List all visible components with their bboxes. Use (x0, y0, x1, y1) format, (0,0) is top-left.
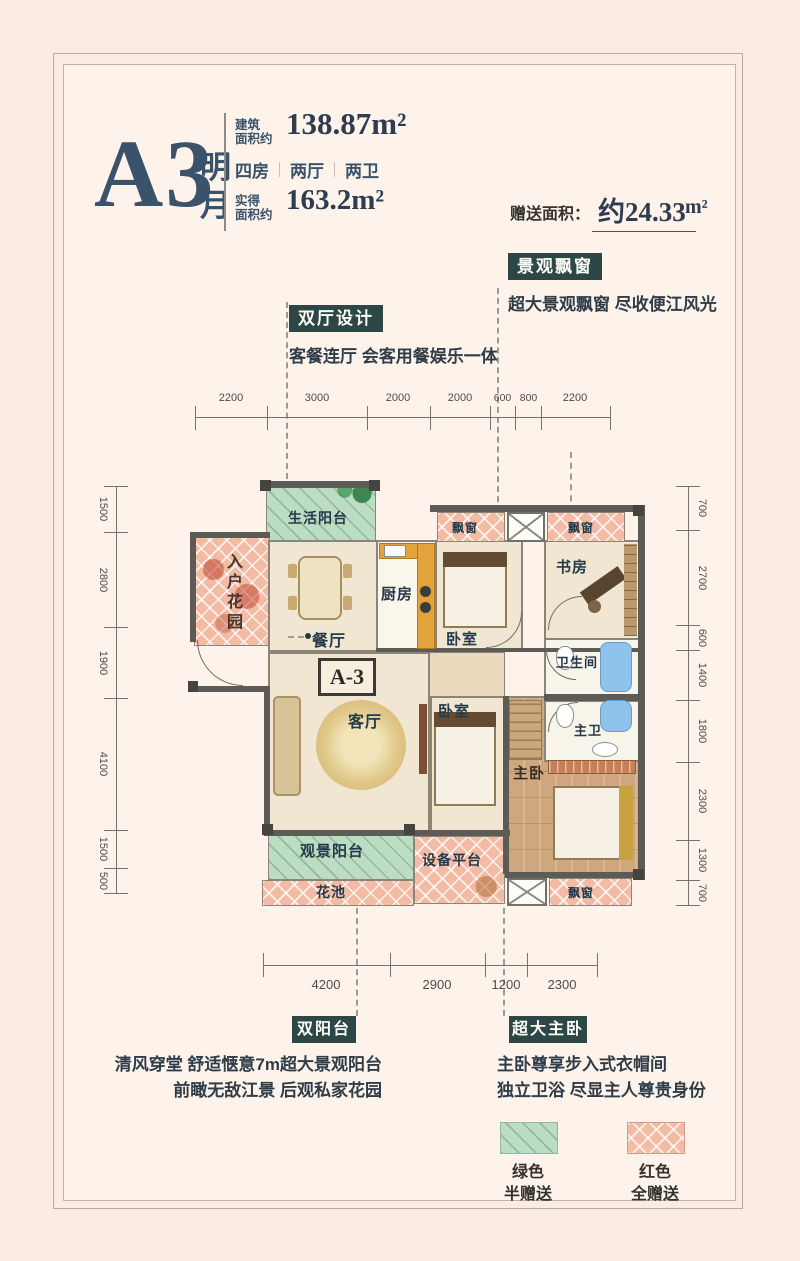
wall-pillar (262, 824, 273, 835)
study-chair (588, 600, 601, 613)
dim-top-4: 600 (489, 392, 516, 404)
wardrobe-corridor (509, 700, 542, 760)
actual-area-label-2: 面积约 (235, 204, 273, 223)
bonus-area-value: 约24.33 (592, 190, 696, 232)
dim-line-top (195, 417, 610, 418)
dim-left-5: 500 (97, 861, 109, 901)
dim-tick (676, 486, 700, 487)
dim-tick (676, 530, 700, 531)
dim-tick (676, 762, 700, 763)
floorplan-flyer: A3 明 月 建筑 面积约 138.87m² 四房 两厅 两卫 实得 面积约 1… (0, 0, 800, 1261)
wall-pillar (633, 505, 644, 516)
room-count-halls: 两厅 (290, 157, 324, 182)
dim-left-2: 1900 (97, 643, 109, 683)
built-area-label-2: 面积约 (235, 128, 273, 147)
dim-right-1: 2700 (696, 558, 708, 598)
dim-tick (485, 953, 486, 977)
callout-bay-window-text: 超大景观飘窗 尽收便江风光 (508, 290, 717, 315)
wall (430, 505, 645, 512)
dim-tick (676, 700, 700, 701)
wall (190, 532, 270, 538)
label-master-bath: 主卫 (574, 720, 602, 739)
dim-line-left (116, 486, 117, 893)
label-living-balcony: 生活阳台 (288, 508, 348, 528)
room-equipment (414, 836, 505, 904)
dim-right-0: 700 (696, 488, 708, 528)
room-count-rooms: 四房 (235, 157, 269, 182)
legend-red-swatch (627, 1122, 685, 1154)
label-view-balcony: 观景阳台 (300, 840, 364, 861)
legend-green-label-1: 绿色 (488, 1158, 568, 1182)
dim-top-5: 800 (515, 392, 542, 404)
leader-master (503, 908, 505, 1016)
room-count-sep2 (334, 162, 335, 177)
dim-tick (104, 627, 128, 628)
label-bedroom-mid: 卧室 (438, 700, 470, 721)
dim-top-2: 2000 (378, 392, 418, 404)
dim-tick (515, 406, 516, 430)
wall (190, 686, 268, 692)
dining-chair (288, 564, 297, 578)
wall-pillar (404, 824, 415, 835)
bathtub-guest (600, 642, 632, 692)
bed-top-headboard (443, 552, 507, 567)
dim-right-2: 600 (696, 618, 708, 658)
dim-left-0: 1500 (97, 489, 109, 529)
dining-table (298, 556, 342, 620)
callout-dual-balcony-line2: 前瞰无敌江景 后观私家花园 (100, 1076, 382, 1101)
dim-tick (430, 406, 431, 430)
callout-dual-hall-tag: 双厅设计 (289, 305, 383, 332)
label-dining: 餐厅 (312, 627, 346, 651)
label-master-bedroom: 主卧 (513, 762, 545, 783)
dim-tick (527, 953, 528, 977)
room-counts-row: 四房 两厅 两卫 (235, 157, 379, 182)
wall-pillar (633, 869, 644, 880)
dim-tick (541, 406, 542, 430)
kitchen-sink (384, 545, 406, 557)
kitchen-stove (420, 586, 431, 597)
dim-line-bottom (263, 965, 597, 966)
label-living: 客厅 (348, 708, 382, 732)
toilet-master (556, 704, 574, 728)
master-bed-headboard (619, 786, 633, 860)
label-bay-bottom: 飘窗 (568, 884, 594, 901)
dim-tick (367, 406, 368, 430)
dim-tick (104, 698, 128, 699)
dining-leader-dot (305, 633, 311, 639)
dim-top-0: 2200 (211, 392, 251, 404)
label-study: 书房 (556, 556, 588, 577)
unit-box: A-3 (318, 658, 376, 696)
dim-left-1: 2800 (97, 560, 109, 600)
master-closet (548, 760, 636, 774)
wall (262, 481, 380, 488)
label-kitchen: 厨房 (381, 583, 413, 604)
actual-area-value: 163.2m² (286, 184, 384, 217)
dim-bottom-1: 2900 (417, 977, 457, 992)
dim-tick (610, 406, 611, 430)
wall-pillar (369, 480, 380, 491)
dim-tick (195, 406, 196, 430)
dim-tick (104, 486, 128, 487)
legend-green-label-2: 半赠送 (488, 1180, 568, 1204)
wall (190, 532, 196, 642)
leader-dual-balcony (356, 908, 358, 1016)
dim-bottom-3: 2300 (542, 977, 582, 992)
label-bay-top-right: 飘窗 (568, 519, 594, 536)
shaft-top (507, 512, 545, 542)
wall (264, 686, 270, 836)
room-count-baths: 两卫 (345, 157, 379, 182)
header-divider (224, 113, 226, 231)
dim-right-7: 700 (696, 873, 708, 913)
callout-dual-balcony-tag: 双阳台 (292, 1016, 356, 1043)
dim-bottom-2: 1200 (486, 977, 526, 992)
dim-bottom-0: 4200 (306, 977, 346, 992)
kitchen-stove (420, 602, 431, 613)
dim-top-1: 3000 (297, 392, 337, 404)
study-shelf (624, 544, 637, 636)
bonus-area-unit: m² (685, 196, 708, 219)
label-entry-garden: 入户花园 (220, 553, 244, 633)
callout-dual-hall-text: 客餐连厅 会客用餐娱乐一体 (289, 342, 498, 367)
dim-top-3: 2000 (440, 392, 480, 404)
dim-right-5: 2300 (696, 781, 708, 821)
dim-left-3: 4100 (97, 744, 109, 784)
dim-right-3: 1400 (696, 655, 708, 695)
sink-master (592, 742, 618, 757)
label-bath-guest: 卫生间 (556, 652, 598, 671)
dim-tick (263, 953, 264, 977)
shaft-bottom (507, 878, 547, 906)
sofa (273, 696, 301, 796)
dim-tick (490, 406, 491, 430)
callout-master-line1: 主卧尊享步入式衣帽间 (497, 1050, 667, 1075)
leader-bay-2 (570, 452, 572, 512)
dim-tick (104, 532, 128, 533)
dim-top-6: 2200 (555, 392, 595, 404)
legend-red-label-2: 全赠送 (615, 1180, 695, 1204)
wall-pillar (188, 681, 198, 692)
wall (638, 505, 645, 880)
dim-tick (390, 953, 391, 977)
dim-tick (597, 953, 598, 977)
unit-title: A3 (94, 118, 215, 229)
shower-master (600, 700, 632, 732)
callout-bay-window-tag: 景观飘窗 (508, 253, 602, 280)
label-flower-bed: 花池 (316, 882, 346, 902)
wall-pillar (260, 480, 271, 491)
room-count-sep (279, 162, 280, 177)
callout-master-line2: 独立卫浴 尽显主人尊贵身份 (497, 1076, 706, 1101)
wall (264, 830, 510, 836)
built-area-value: 138.87m² (286, 106, 406, 142)
label-bedroom-top: 卧室 (446, 628, 478, 649)
unit-title-suffix-2: 月 (200, 180, 231, 225)
dining-chair (343, 564, 352, 578)
label-bay-top-left: 飘窗 (452, 519, 478, 536)
dim-tick (267, 406, 268, 430)
dining-leader-dash (288, 636, 304, 638)
callout-master-tag: 超大主卧 (509, 1016, 587, 1043)
dim-right-4: 1800 (696, 711, 708, 751)
wall (505, 872, 640, 878)
tv-cabinet (419, 704, 427, 774)
dining-chair (288, 596, 297, 610)
legend-red-label-1: 红色 (615, 1158, 695, 1182)
dining-chair (343, 596, 352, 610)
legend-green-swatch (500, 1122, 558, 1154)
dim-line-right (688, 486, 689, 905)
callout-dual-balcony-line1: 清风穿堂 舒适惬意7m超大景观阳台 (100, 1050, 382, 1075)
bonus-area-label: 赠送面积： (510, 200, 590, 224)
label-equipment: 设备平台 (422, 850, 482, 870)
